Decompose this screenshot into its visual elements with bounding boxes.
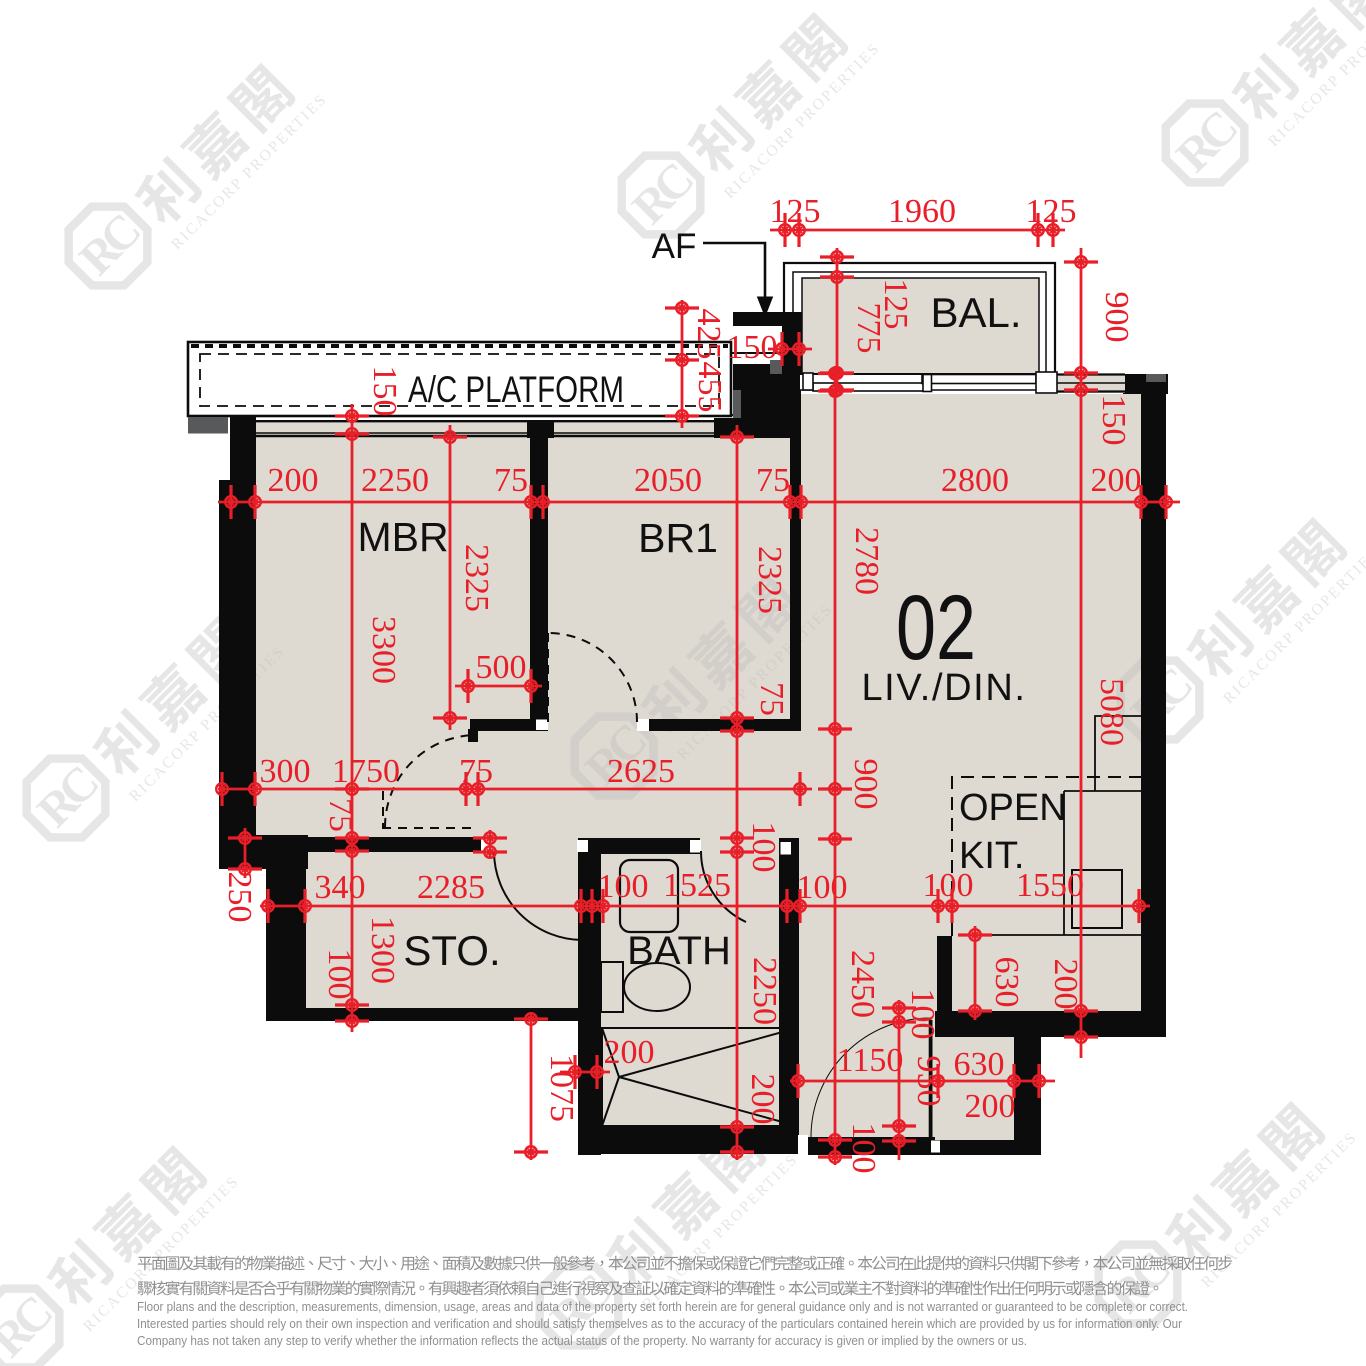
svg-text:2450: 2450 [844, 950, 881, 1018]
svg-text:775: 775 [850, 303, 887, 354]
svg-text:2250: 2250 [746, 957, 783, 1025]
svg-text:150: 150 [1095, 395, 1132, 446]
svg-text:1300: 1300 [364, 916, 401, 984]
svg-text:75: 75 [322, 798, 359, 832]
svg-text:2250: 2250 [361, 462, 429, 499]
svg-text:1960: 1960 [888, 193, 956, 230]
svg-text:250: 250 [221, 872, 258, 923]
svg-text:200: 200 [1047, 959, 1084, 1010]
svg-text:630: 630 [954, 1046, 1005, 1083]
svg-text:125: 125 [1026, 193, 1077, 230]
svg-text:150: 150 [366, 366, 403, 417]
svg-text:2050: 2050 [634, 462, 702, 499]
svg-text:200: 200 [744, 1074, 781, 1125]
svg-text:340: 340 [315, 869, 366, 906]
svg-text:1525: 1525 [663, 867, 731, 904]
svg-text:OPEN: OPEN [959, 787, 1067, 829]
svg-text:455: 455 [691, 362, 728, 413]
svg-text:02: 02 [896, 577, 976, 679]
svg-text:75: 75 [459, 753, 493, 790]
svg-text:200: 200 [965, 1088, 1016, 1125]
svg-text:BR1: BR1 [638, 515, 718, 561]
svg-text:A/C PLATFORM: A/C PLATFORM [408, 369, 624, 410]
svg-text:5080: 5080 [1093, 678, 1130, 746]
svg-text:150: 150 [727, 329, 778, 366]
svg-text:MBR: MBR [357, 514, 448, 560]
svg-text:75: 75 [756, 462, 790, 499]
svg-text:3300: 3300 [365, 616, 402, 684]
svg-text:1750: 1750 [332, 753, 400, 790]
svg-text:100: 100 [321, 949, 358, 1000]
svg-text:2325: 2325 [751, 546, 788, 614]
svg-text:630: 630 [988, 957, 1025, 1008]
svg-text:2285: 2285 [417, 869, 485, 906]
svg-text:200: 200 [268, 462, 319, 499]
svg-text:1150: 1150 [837, 1042, 904, 1079]
svg-text:900: 900 [847, 759, 884, 810]
svg-text:Interested parties should rely: Interested parties should rely on their … [137, 1316, 1183, 1331]
svg-text:900: 900 [1098, 292, 1135, 343]
svg-text:2325: 2325 [458, 544, 495, 612]
svg-text:200: 200 [604, 1034, 655, 1071]
svg-text:100: 100 [904, 989, 941, 1040]
svg-text:2625: 2625 [607, 753, 675, 790]
svg-text:100: 100 [923, 867, 974, 904]
svg-text:200: 200 [1091, 462, 1142, 499]
svg-text:425: 425 [690, 309, 727, 360]
svg-text:Company has not taken any step: Company has not taken any step to verify… [137, 1333, 1027, 1348]
svg-text:100: 100 [745, 822, 782, 873]
svg-text:BATH: BATH [627, 929, 731, 973]
svg-text:300: 300 [260, 753, 311, 790]
svg-text:AF: AF [652, 227, 697, 266]
svg-text:100: 100 [797, 869, 848, 906]
svg-text:1075: 1075 [543, 1054, 580, 1122]
svg-text:BAL.: BAL. [930, 289, 1021, 336]
svg-text:STO.: STO. [403, 927, 500, 974]
svg-text:950: 950 [910, 1056, 947, 1107]
svg-text:Floor plans and the descriptio: Floor plans and the description, measure… [137, 1299, 1188, 1314]
svg-text:75: 75 [494, 462, 528, 499]
svg-text:100: 100 [845, 1123, 882, 1174]
svg-text:500: 500 [476, 649, 527, 686]
svg-text:100: 100 [598, 868, 649, 905]
svg-text:2780: 2780 [848, 527, 885, 595]
svg-text:75: 75 [753, 682, 790, 716]
svg-text:125: 125 [770, 193, 821, 230]
svg-text:2800: 2800 [941, 462, 1009, 499]
svg-text:1550: 1550 [1016, 867, 1084, 904]
